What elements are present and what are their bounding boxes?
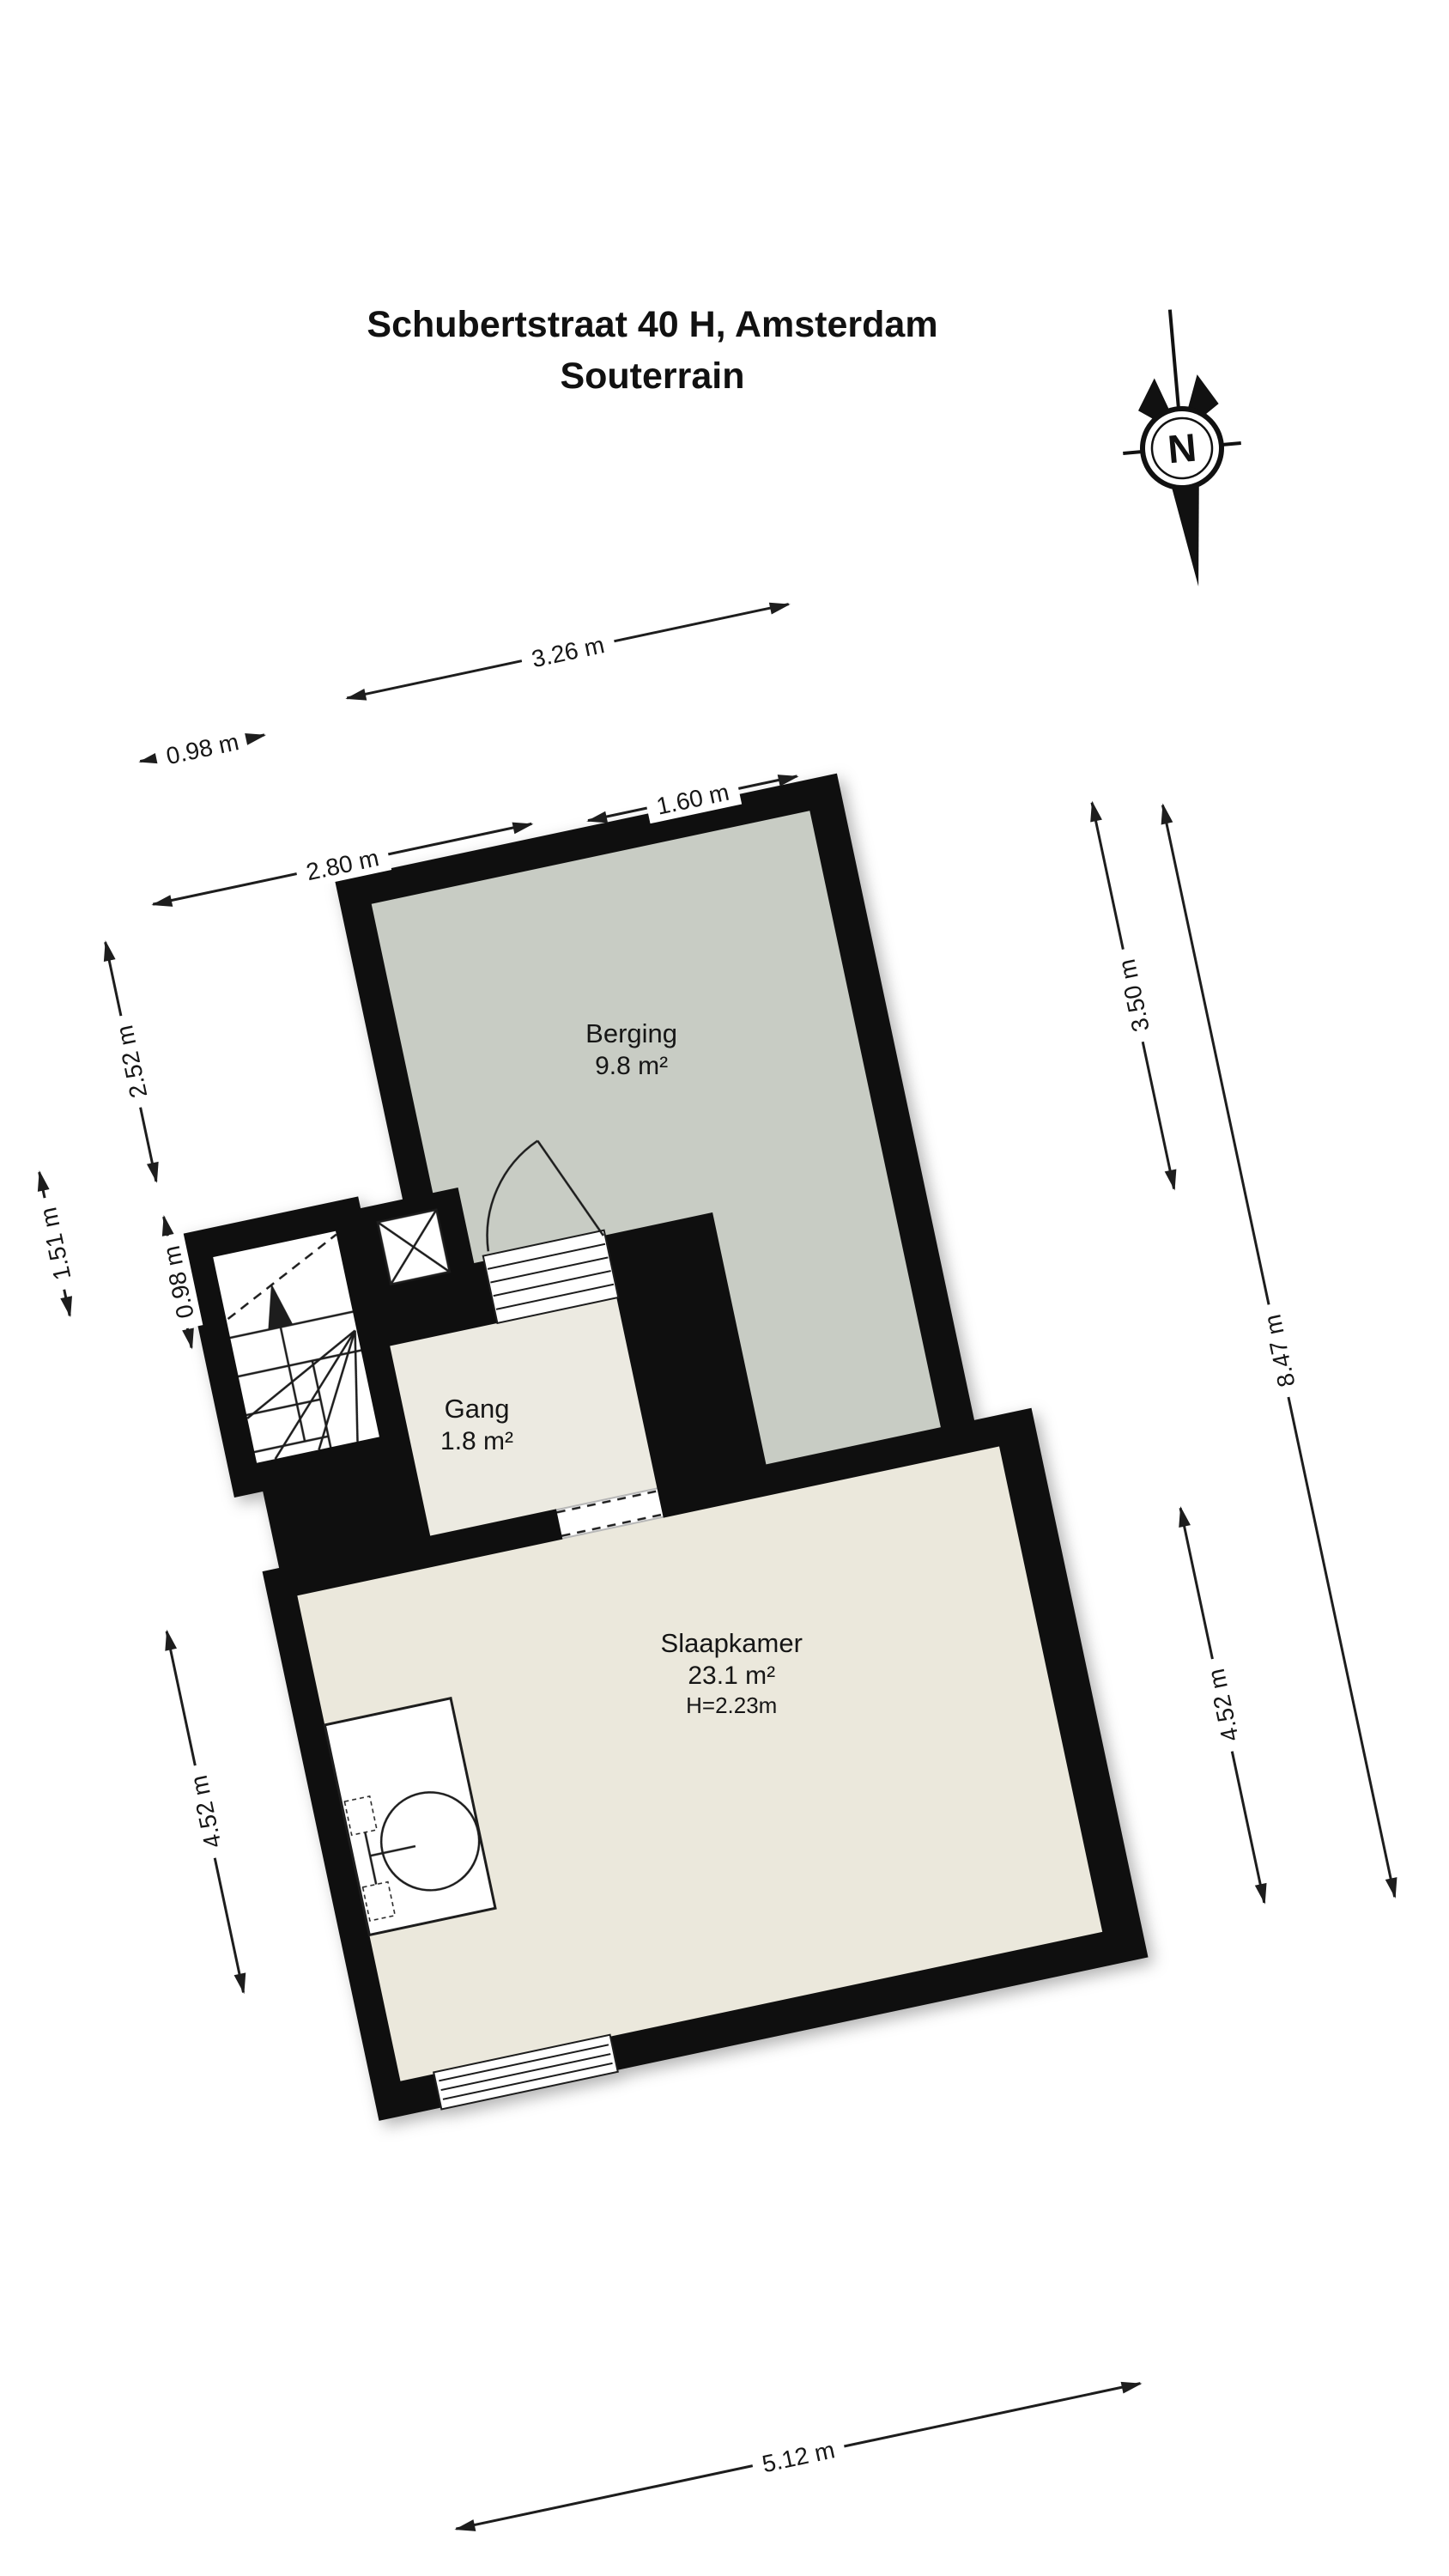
- dim-stair-width-098: 0.98 m: [140, 733, 264, 762]
- room-label-berging: Berging 9.8 m²: [585, 1018, 677, 1082]
- room-label-gang: Gang 1.8 m²: [440, 1393, 513, 1457]
- plan-title-address: Schubertstraat 40 H, Amsterdam: [292, 299, 1013, 350]
- slaapkamer-ceiling-height: H=2.23m: [661, 1692, 803, 1720]
- dim-label-847: 8.47 m: [1256, 1302, 1304, 1400]
- dim-slaapkamer-width-512: 5.12 m: [456, 2382, 1141, 2530]
- plan-title-floor: Souterrain: [292, 350, 1013, 402]
- compass-tail: [1172, 484, 1208, 587]
- gang-area: 1.8 m²: [440, 1425, 513, 1457]
- slaapkamer-name: Slaapkamer: [661, 1627, 803, 1660]
- compass-icon: N: [1088, 295, 1276, 600]
- plan-title: Schubertstraat 40 H, Amsterdam Souterrai…: [292, 299, 1013, 402]
- gang-name: Gang: [440, 1393, 513, 1425]
- dim-label-326: 3.26 m: [519, 629, 617, 677]
- dim-berging-height-350: 3.50 m: [1091, 802, 1176, 1189]
- slaapkamer-area: 23.1 m²: [661, 1660, 803, 1692]
- dim-label-098-top: 0.98 m: [154, 726, 252, 774]
- dim-label-452-right: 4.52 m: [1199, 1656, 1247, 1754]
- shaft-x-icon: [378, 1210, 450, 1285]
- dim-label-350: 3.50 m: [1110, 946, 1158, 1044]
- dim-label-512: 5.12 m: [749, 2433, 847, 2482]
- berging-area: 9.8 m²: [585, 1050, 677, 1082]
- dim-berging-width-326: 3.26 m: [347, 603, 789, 699]
- room-label-slaapkamer: Slaapkamer 23.1 m² H=2.23m: [661, 1627, 803, 1720]
- berging-name: Berging: [585, 1018, 677, 1050]
- compass-label: N: [1166, 425, 1198, 472]
- building-drawing: [0, 733, 1207, 2175]
- dim-slaapkamer-height-right-452: 4.52 m: [1179, 1508, 1266, 1903]
- dim-total-height-847: 8.47 m: [1161, 805, 1396, 1897]
- floor-plan-page: Schubertstraat 40 H, Amsterdam Souterrai…: [0, 0, 1449, 2576]
- compass-needle-line: [1170, 310, 1179, 410]
